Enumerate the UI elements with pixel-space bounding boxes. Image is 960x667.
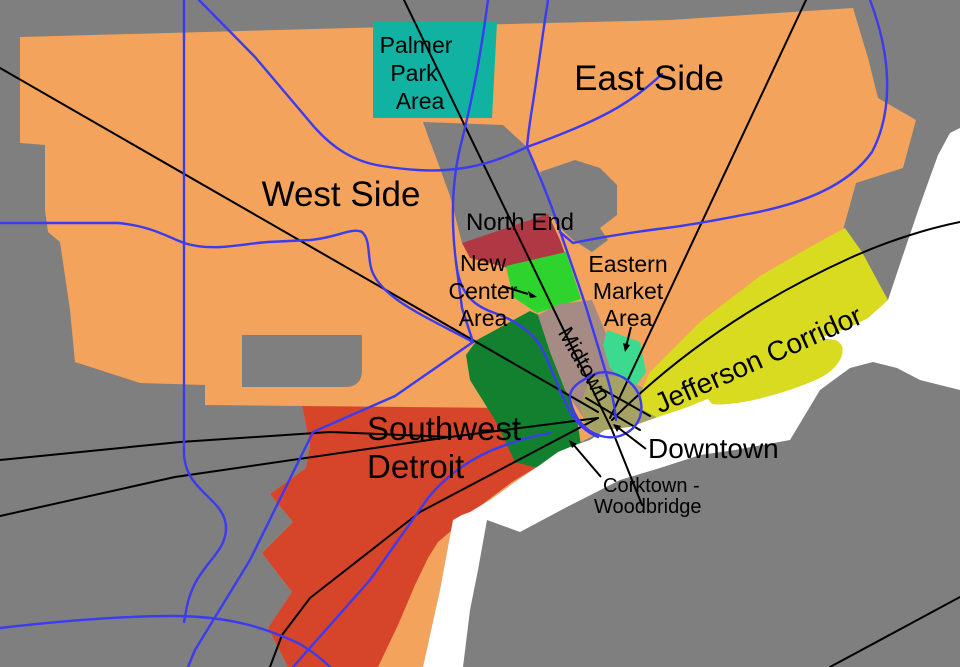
label-eastern-market-3: Area	[604, 305, 653, 331]
label-new-center-1: New	[460, 250, 506, 276]
label-southwest-detroit-1: Southwest	[367, 410, 521, 447]
label-downtown: Downtown	[648, 433, 779, 464]
label-new-center-3: Area	[459, 305, 508, 331]
detroit-neighborhood-map[interactable]: Palmer Park Area East Side West Side Nor…	[0, 0, 960, 667]
label-eastern-market-2: Market	[593, 278, 664, 304]
label-corktown-2: Woodbridge	[594, 496, 701, 518]
map-canvas[interactable]: Palmer Park Area East Side West Side Nor…	[0, 0, 960, 667]
label-southwest-detroit-2: Detroit	[367, 448, 464, 485]
label-west-side: West Side	[262, 175, 421, 214]
region-enclave-dearborn	[242, 335, 362, 387]
label-eastern-market-1: Eastern	[588, 251, 667, 277]
label-east-side: East Side	[574, 59, 724, 98]
label-new-center-2: Center	[448, 278, 517, 304]
label-palmer-park-1: Palmer	[380, 32, 453, 58]
label-north-end: North End	[466, 209, 574, 236]
label-palmer-park-2: Park	[390, 60, 438, 86]
label-corktown-1: Corktown -	[603, 475, 700, 497]
label-palmer-park-3: Area	[396, 88, 445, 114]
